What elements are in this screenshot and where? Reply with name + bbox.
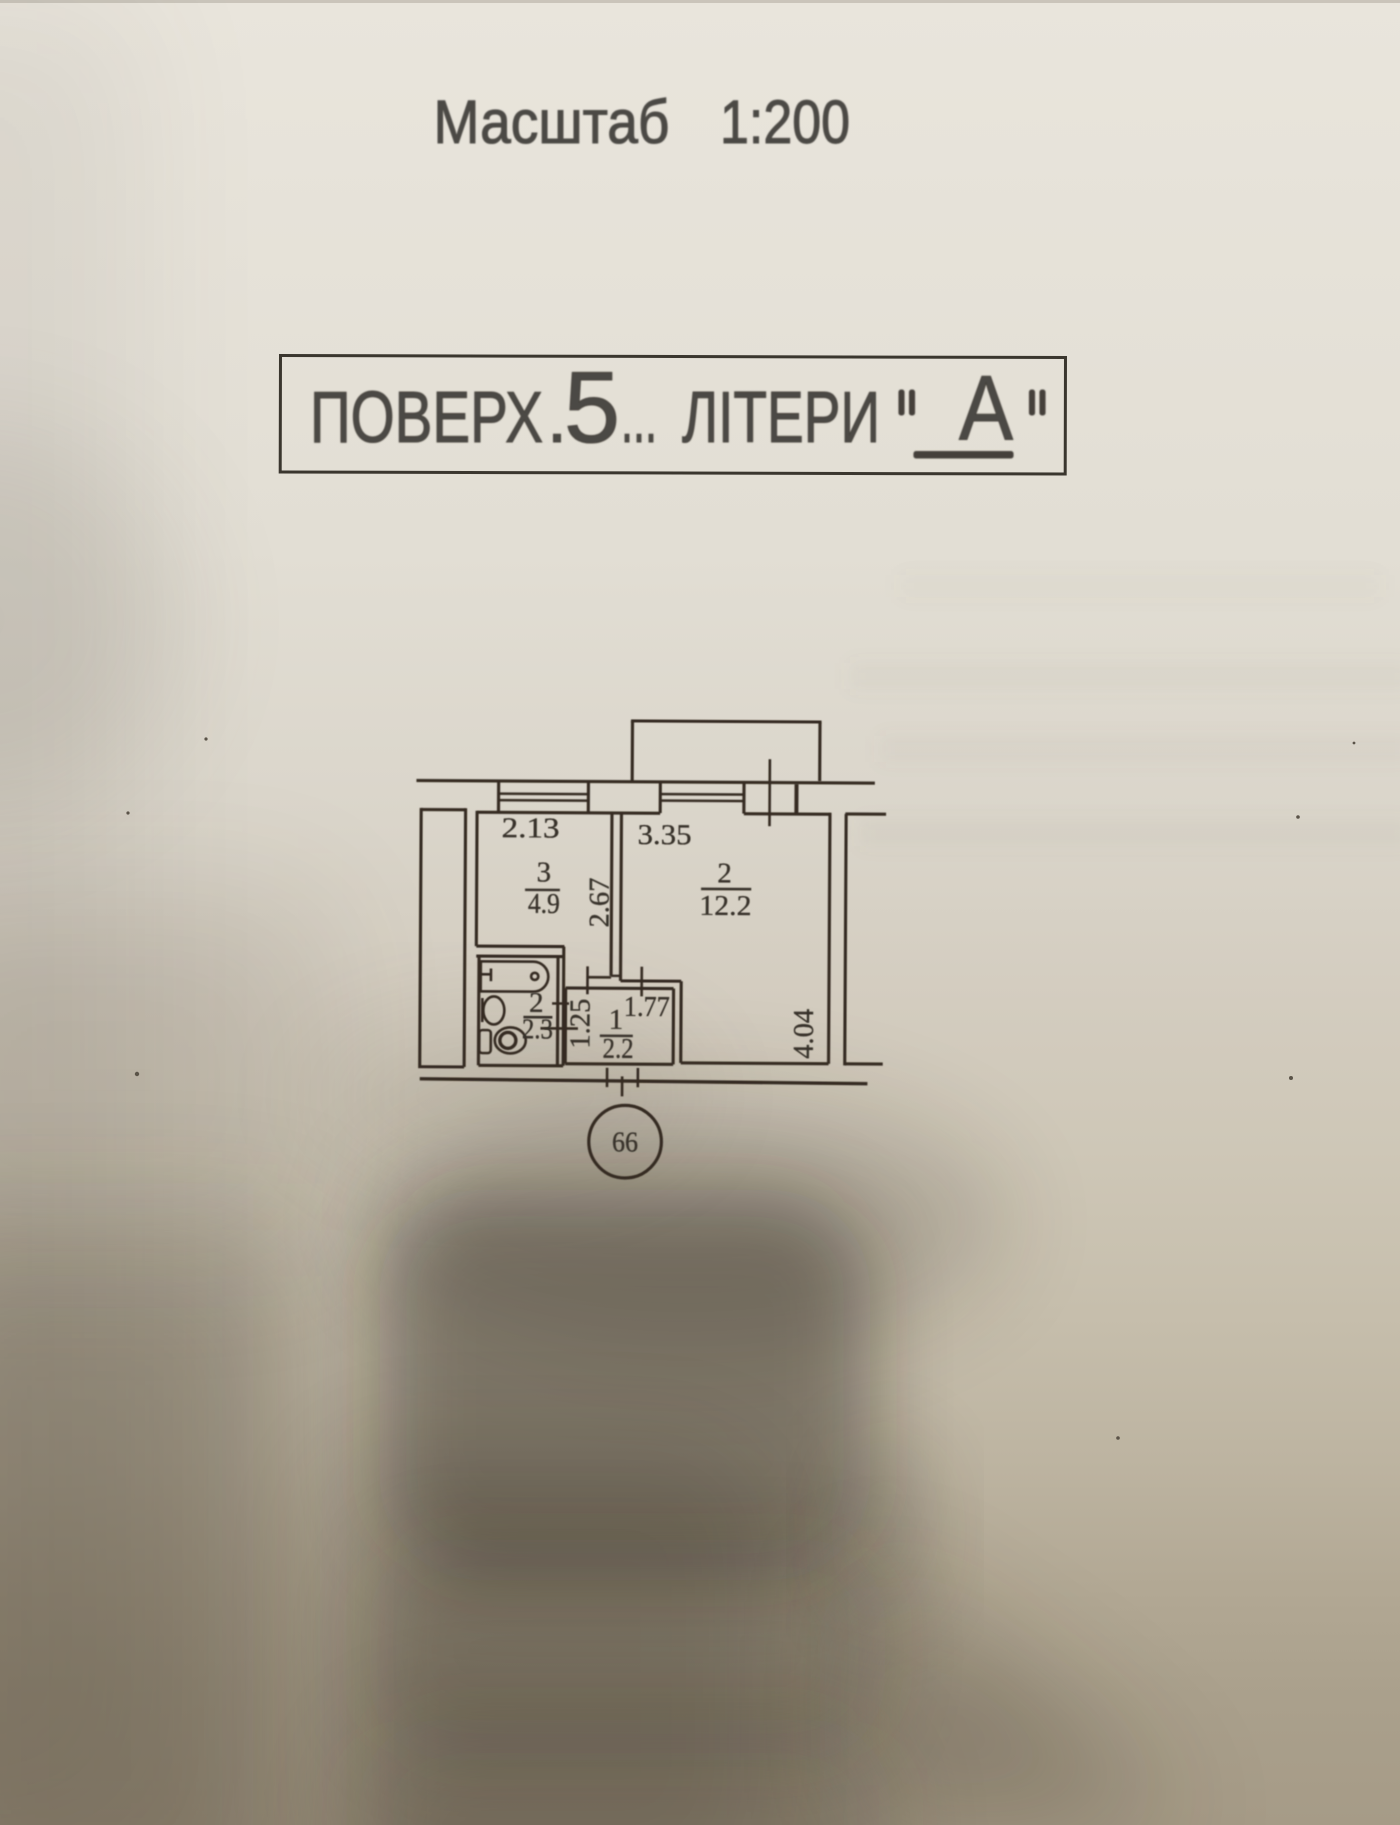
svg-text:12.2: 12.2 [699,890,751,922]
svg-text:1:200: 1:200 [720,88,850,156]
svg-text:1.25: 1.25 [564,999,596,1049]
svg-text:3.35: 3.35 [637,819,691,851]
svg-text:66: 66 [612,1126,638,1158]
svg-text:5: 5 [564,352,620,464]
svg-text:1.77: 1.77 [624,991,670,1023]
svg-text:2.3: 2.3 [522,1013,553,1045]
svg-text:2.13: 2.13 [501,812,559,844]
svg-text:А: А [959,358,1014,460]
svg-text:3: 3 [536,856,551,888]
svg-text:1: 1 [609,1004,624,1036]
svg-text:...: ... [621,378,657,458]
svg-text:ЛІТЕРИ: ЛІТЕРИ [682,378,880,458]
svg-text:4.9: 4.9 [528,888,560,920]
svg-text:Масштаб: Масштаб [434,88,670,156]
svg-text:2.67: 2.67 [583,877,615,927]
svg-text:ПОВЕРХ: ПОВЕРХ [310,378,543,458]
svg-text:4.04: 4.04 [788,1008,820,1059]
svg-text:2: 2 [717,857,732,889]
svg-text:2.2: 2.2 [603,1033,634,1065]
